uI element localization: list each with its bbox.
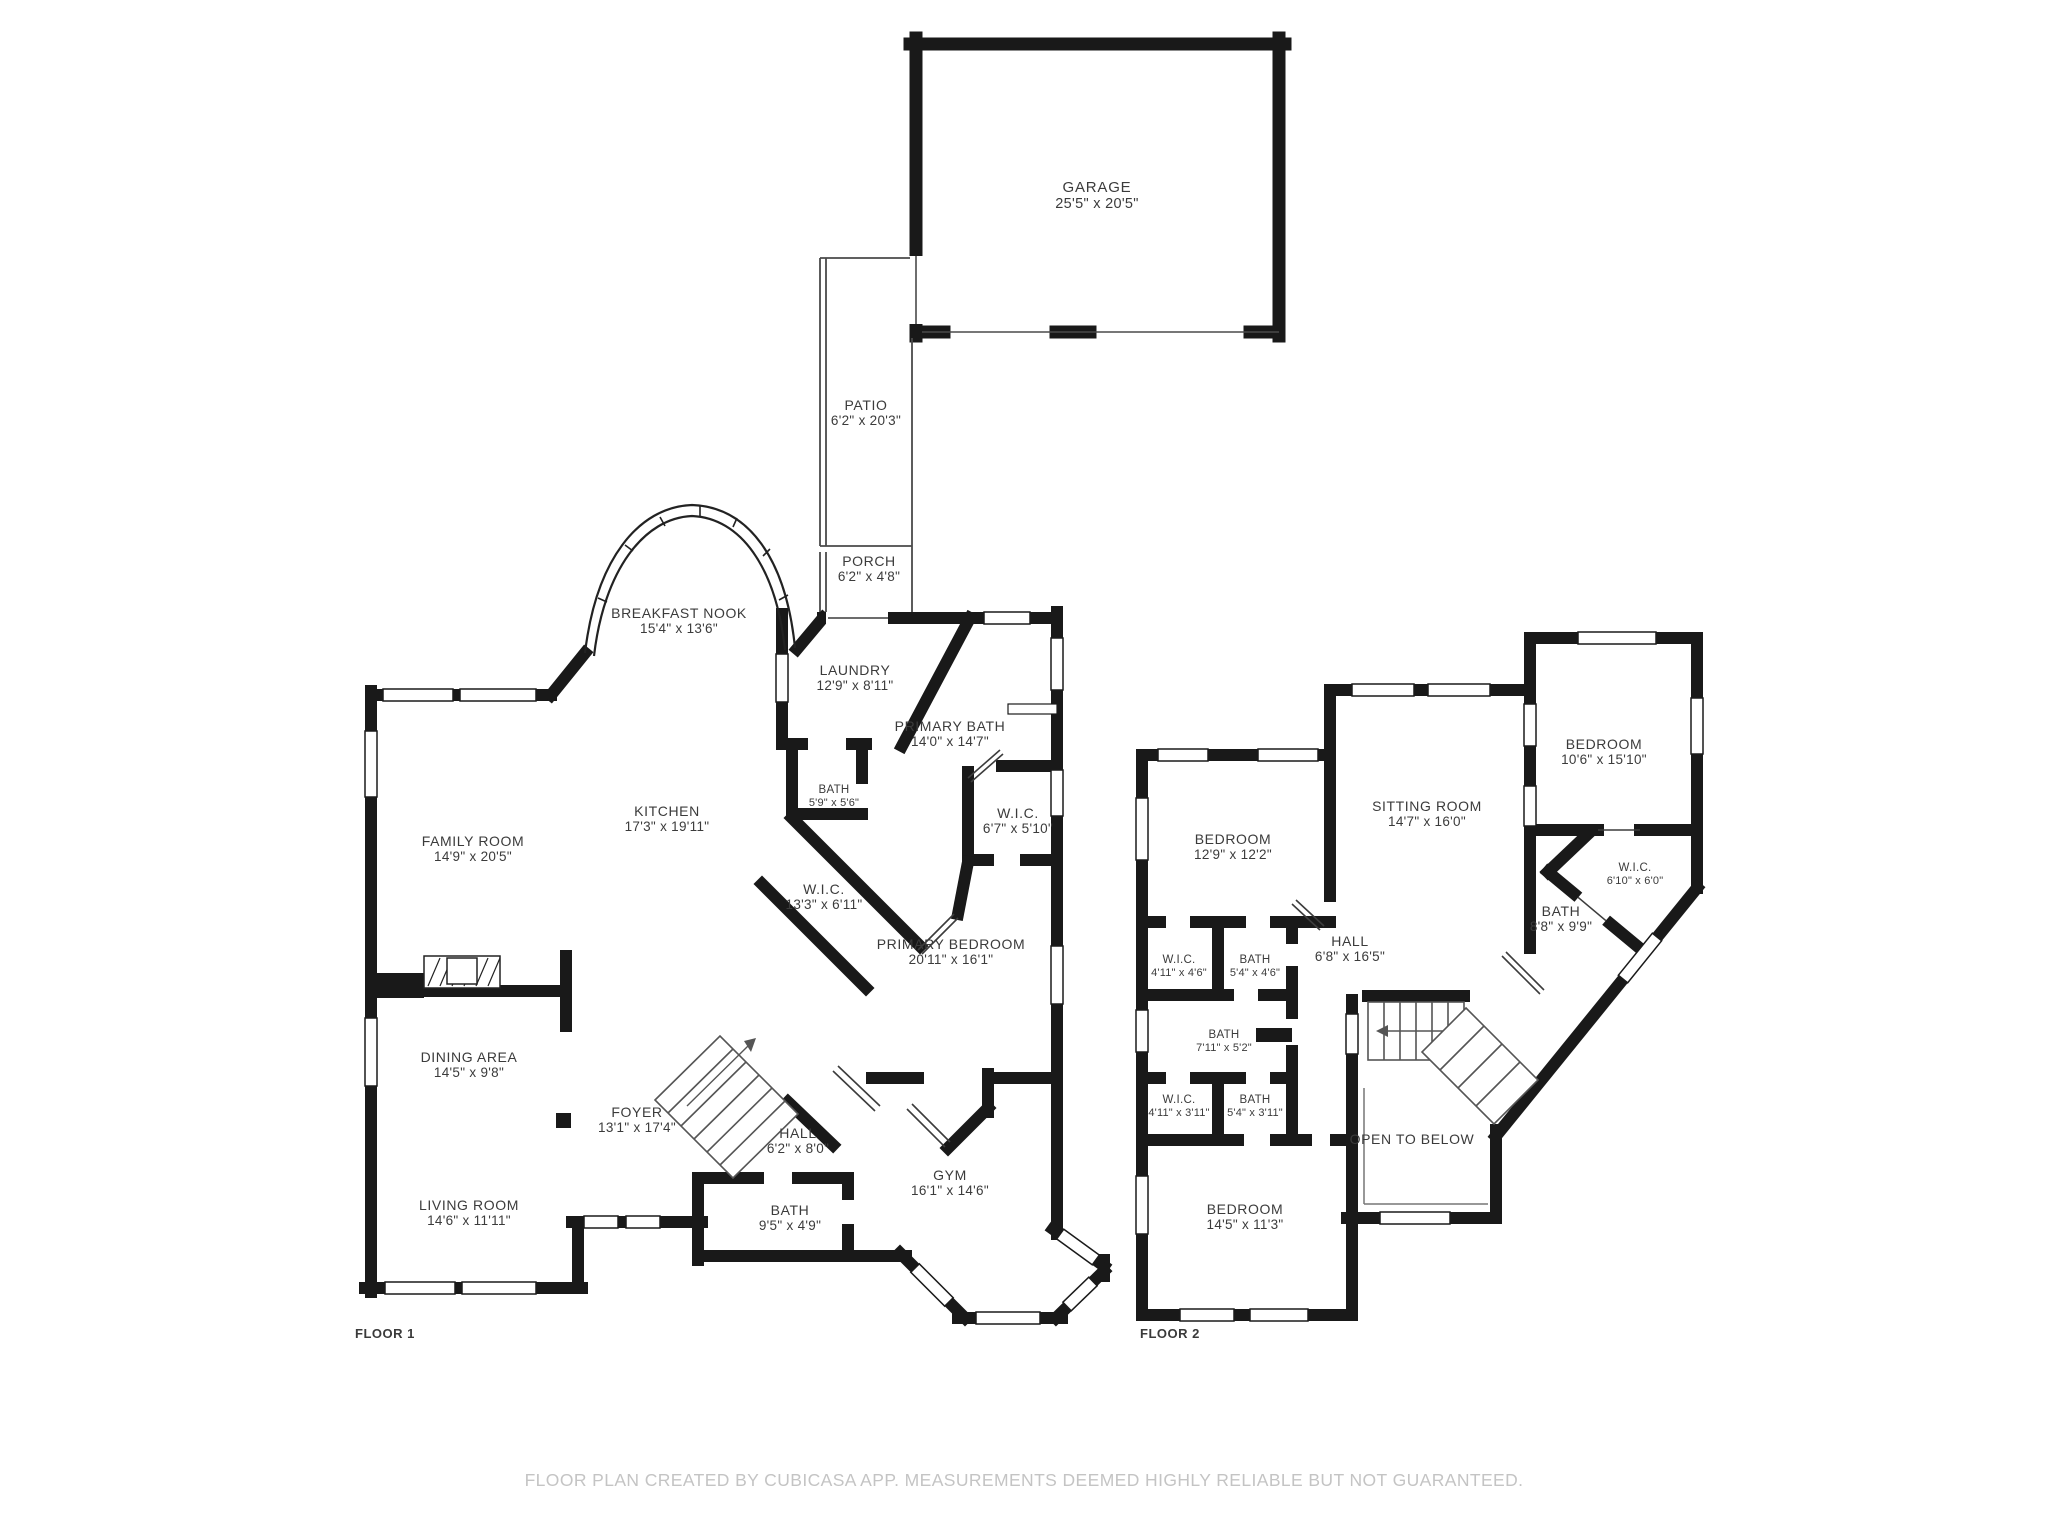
- room-name: LAUNDRY: [817, 662, 894, 678]
- room-dims: 4'11" x 4'6": [1151, 967, 1207, 980]
- room-name: PATIO: [831, 397, 901, 413]
- structural-column: [556, 1113, 571, 1128]
- room-label-bath-f2-2: BATH 5'4" x 4'6": [1230, 954, 1280, 980]
- room-name: HALL: [767, 1125, 829, 1141]
- floorplan-image: [0, 0, 2048, 1536]
- room-dims: 6'10" x 6'0": [1607, 875, 1664, 888]
- room-label-bath-f2-3: BATH 7'11" x 5'2": [1196, 1029, 1252, 1055]
- room-label-living-room: LIVING ROOM 14'6" x 11'11": [419, 1197, 519, 1229]
- room-name: LIVING ROOM: [419, 1197, 519, 1213]
- room-name: KITCHEN: [625, 803, 710, 819]
- room-name: OPEN TO BELOW: [1350, 1131, 1475, 1147]
- room-name: BEDROOM: [1194, 831, 1272, 847]
- room-label-wic-f2-2: W.I.C. 4'11" x 4'6": [1151, 954, 1207, 980]
- room-label-hall-f2: HALL 6'8" x 16'5": [1315, 933, 1385, 965]
- room-label-sitting-room: SITTING ROOM 14'7" x 16'0": [1372, 798, 1482, 830]
- room-label-porch: PORCH 6'2" x 4'8": [838, 553, 900, 585]
- room-label-bath-f1: BATH 9'5" x 4'9": [759, 1202, 821, 1234]
- room-dims: 14'7" x 16'0": [1372, 814, 1482, 830]
- room-dims: 12'9" x 8'11": [817, 678, 894, 694]
- floor2-stairs: [1368, 1002, 1538, 1124]
- room-label-gym: GYM 16'1" x 14'6": [911, 1167, 989, 1199]
- room-name: HALL: [1315, 933, 1385, 949]
- fireplace: [424, 956, 500, 988]
- room-name: W.I.C.: [983, 805, 1053, 821]
- room-dims: 10'6" x 15'10": [1561, 752, 1647, 768]
- floor2-tag: FLOOR 2: [1140, 1326, 1200, 1341]
- room-name: FOYER: [598, 1104, 676, 1120]
- room-label-wic-primary: W.I.C. 6'7" x 5'10": [983, 805, 1053, 837]
- room-label-bedroom-3: BEDROOM 14'5" x 11'3": [1207, 1201, 1284, 1233]
- room-dims: 14'9" x 20'5": [422, 849, 525, 865]
- room-label-open-to-below: OPEN TO BELOW: [1350, 1131, 1475, 1147]
- room-dims: 13'3" x 6'11": [786, 897, 863, 913]
- room-name: BATH: [1227, 1094, 1283, 1107]
- room-label-bedroom-2: BEDROOM 10'6" x 15'10": [1561, 736, 1647, 768]
- room-dims: 6'2" x 20'3": [831, 413, 901, 429]
- footer-disclaimer: FLOOR PLAN CREATED BY CUBICASA APP. MEAS…: [0, 1470, 2048, 1491]
- room-label-foyer: FOYER 13'1" x 17'4": [598, 1104, 676, 1136]
- room-dims: 14'5" x 9'8": [421, 1065, 518, 1081]
- room-name: W.I.C.: [1148, 1094, 1209, 1107]
- room-dims: 12'9" x 12'2": [1194, 847, 1272, 863]
- room-label-kitchen: KITCHEN 17'3" x 19'11": [625, 803, 710, 835]
- floorplan-page: GARAGE 25'5" x 20'5" PATIO 6'2" x 20'3" …: [0, 0, 2048, 1536]
- room-dims: 9'5" x 4'9": [759, 1218, 821, 1234]
- floor1-tag: FLOOR 1: [355, 1326, 415, 1341]
- room-label-wic-f2-1: W.I.C. 6'10" x 6'0": [1607, 862, 1664, 888]
- room-label-family-room: FAMILY ROOM 14'9" x 20'5": [422, 833, 525, 865]
- room-name: PRIMARY BEDROOM: [877, 936, 1026, 952]
- room-label-laundry: LAUNDRY 12'9" x 8'11": [817, 662, 894, 694]
- room-dims: 20'11" x 16'1": [877, 952, 1026, 968]
- room-name: BATH: [1530, 903, 1592, 919]
- room-label-wic-corridor: W.I.C. 13'3" x 6'11": [786, 881, 863, 913]
- room-dims: 14'5" x 11'3": [1207, 1217, 1284, 1233]
- room-name: PRIMARY BATH: [895, 718, 1006, 734]
- room-label-patio: PATIO 6'2" x 20'3": [831, 397, 901, 429]
- room-dims: 16'1" x 14'6": [911, 1183, 989, 1199]
- room-label-dining-area: DINING AREA 14'5" x 9'8": [421, 1049, 518, 1081]
- room-name: BREAKFAST NOOK: [611, 605, 747, 621]
- room-label-breakfast-nook: BREAKFAST NOOK 15'4" x 13'6": [611, 605, 747, 637]
- room-name: W.I.C.: [1151, 954, 1207, 967]
- room-name: BATH: [759, 1202, 821, 1218]
- room-name: BATH: [1196, 1029, 1252, 1042]
- room-name: BEDROOM: [1207, 1201, 1284, 1217]
- room-label-wic-f2-3: W.I.C. 4'11" x 3'11": [1148, 1094, 1209, 1120]
- room-name: GARAGE: [1055, 179, 1138, 196]
- room-name: DINING AREA: [421, 1049, 518, 1065]
- room-label-hall-f1: HALL 6'2" x 8'0": [767, 1125, 829, 1157]
- room-dims: 5'9" x 5'6": [809, 797, 859, 810]
- room-name: FAMILY ROOM: [422, 833, 525, 849]
- room-name: W.I.C.: [786, 881, 863, 897]
- room-dims: 6'7" x 5'10": [983, 821, 1053, 837]
- room-dims: 6'8" x 16'5": [1315, 949, 1385, 965]
- room-name: SITTING ROOM: [1372, 798, 1482, 814]
- room-dims: 6'2" x 8'0": [767, 1141, 829, 1157]
- room-name: BEDROOM: [1561, 736, 1647, 752]
- room-dims: 17'3" x 19'11": [625, 819, 710, 835]
- room-dims: 14'0" x 14'7": [895, 734, 1006, 750]
- room-name: BATH: [1230, 954, 1280, 967]
- room-dims: 5'4" x 4'6": [1230, 967, 1280, 980]
- room-dims: 8'8" x 9'9": [1530, 919, 1592, 935]
- room-dims: 14'6" x 11'11": [419, 1213, 519, 1229]
- room-dims: 7'11" x 5'2": [1196, 1042, 1252, 1055]
- garage-openings: [909, 256, 1279, 332]
- room-name: W.I.C.: [1607, 862, 1664, 875]
- room-dims: 4'11" x 3'11": [1148, 1107, 1209, 1120]
- room-name: GYM: [911, 1167, 989, 1183]
- room-dims: 15'4" x 13'6": [611, 621, 747, 637]
- room-name: PORCH: [838, 553, 900, 569]
- room-label-garage: GARAGE 25'5" x 20'5": [1055, 179, 1138, 213]
- room-label-primary-bath: PRIMARY BATH 14'0" x 14'7": [895, 718, 1006, 750]
- room-dims: 25'5" x 20'5": [1055, 196, 1138, 213]
- room-label-bath-f2-4: BATH 5'4" x 3'11": [1227, 1094, 1283, 1120]
- room-dims: 13'1" x 17'4": [598, 1120, 676, 1136]
- room-dims: 5'4" x 3'11": [1227, 1107, 1283, 1120]
- room-label-primary-bedroom: PRIMARY BEDROOM 20'11" x 16'1": [877, 936, 1026, 968]
- room-label-bath-small: BATH 5'9" x 5'6": [809, 784, 859, 810]
- room-label-bath-f2-1: BATH 8'8" x 9'9": [1530, 903, 1592, 935]
- room-name: BATH: [809, 784, 859, 797]
- room-label-bedroom-1: BEDROOM 12'9" x 12'2": [1194, 831, 1272, 863]
- room-dims: 6'2" x 4'8": [838, 569, 900, 585]
